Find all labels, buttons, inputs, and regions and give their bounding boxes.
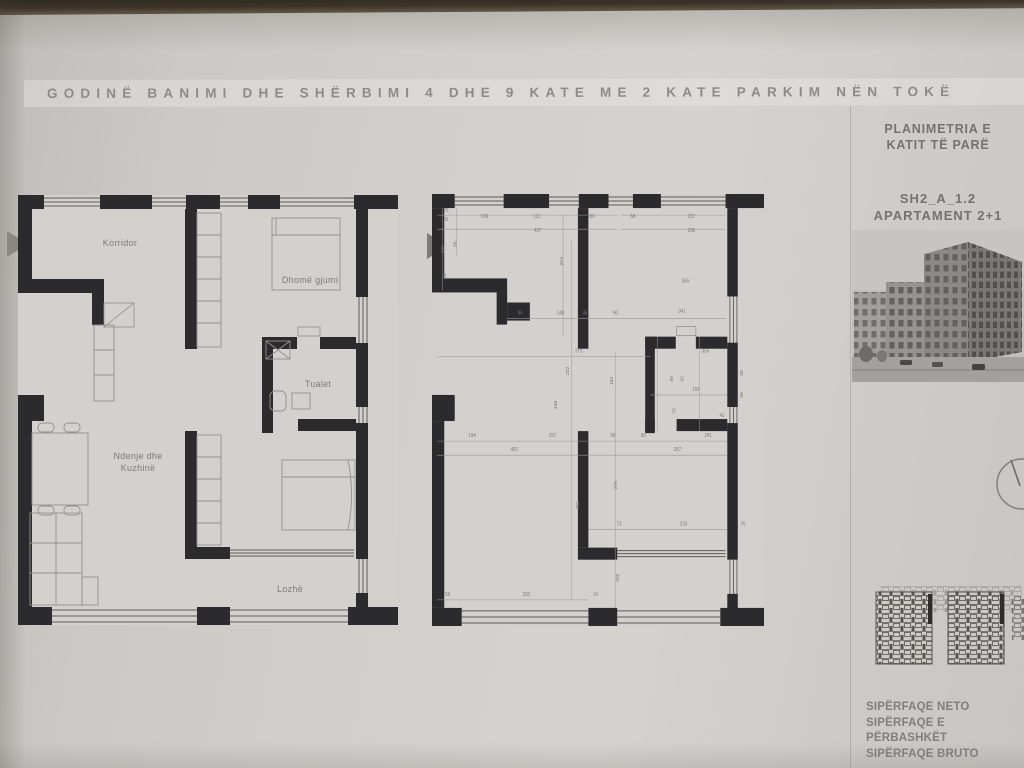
dimension-label: 355 <box>702 348 710 353</box>
dimension-label: 276 <box>614 481 619 490</box>
dimension-label: 257 <box>549 433 557 438</box>
dimension-label: 73 <box>617 521 622 526</box>
paper-top-edge <box>0 0 1024 15</box>
dimension-label: 41 <box>720 413 725 418</box>
dimension-label: 237 <box>688 214 696 219</box>
dimension-label: 192 <box>609 376 614 385</box>
keyplan-thumb-2 <box>948 592 1004 664</box>
keyplan-thumbnails-image <box>860 578 1024 670</box>
dimension-label: 96 <box>518 310 523 315</box>
plan-paper <box>432 194 764 626</box>
plan-paper <box>18 195 398 625</box>
paper-fold-line <box>850 106 851 768</box>
dimension-label: 194 <box>469 433 477 438</box>
dimension-label: 111 <box>534 214 541 219</box>
area-bruto: SIPËRFAQE BRUTO <box>866 747 1024 763</box>
dimension-label: 241 <box>704 433 712 438</box>
scanned-plan-sheet: GODINË BANIMI DHE SHËRBIMI 4 DHE 9 KATE … <box>0 0 1024 768</box>
dimension-label: 451 <box>575 501 580 510</box>
dimension-label: 202 <box>615 573 620 582</box>
dimension-label: 56 <box>453 241 458 247</box>
area-summary: SIPËRFAQE NETO SIPËRFAQE E PËRBASHKËT SI… <box>866 700 1024 762</box>
dimension-label: 14 <box>593 592 598 597</box>
dimension-label: 365 <box>682 278 690 283</box>
dimension-label: 36 <box>442 273 447 279</box>
dimension-label: 90 <box>669 376 674 382</box>
dimension-label: 56 <box>445 592 450 597</box>
dimension-label: 90 <box>641 433 646 438</box>
floorplan-dimensioned: 7543106111156684372372961005636253365961… <box>432 194 764 631</box>
area-perbashket: SIPËRFAQE E PËRBASHKËT <box>866 716 1024 747</box>
keyplan-thumb-1 <box>876 592 932 664</box>
dimension-label: 106 <box>481 214 489 219</box>
room-label-ndenje-1: Ndenje dhe <box>113 451 162 461</box>
dimension-label: 68 <box>631 214 636 219</box>
keyplan-thumb-partial <box>1012 596 1024 640</box>
apartment-type: APARTAMENT 2+1 <box>852 207 1024 224</box>
dimension-label: 296 <box>688 228 696 233</box>
dimension-label: 100 <box>441 245 446 254</box>
unit-code: SH2_A_1.2 <box>852 190 1024 207</box>
dimension-label: 96 <box>739 392 744 398</box>
dimension-label: 458 <box>553 400 558 409</box>
room-label-dhome-gjumi: Dhomë gjumi <box>282 275 338 285</box>
dimension-label: 43 <box>444 217 449 222</box>
dimension-label: 233 <box>680 521 688 526</box>
dimension-label: 156 <box>587 214 595 219</box>
dimension-label: 92 <box>680 376 685 382</box>
dimension-label: 90 <box>613 310 618 315</box>
room-label-ndenje-2: Kuzhinë <box>121 463 156 473</box>
dimension-label: 257 <box>674 447 682 452</box>
area-neto: SIPËRFAQE NETO <box>866 700 1024 716</box>
building-rendering <box>852 230 1024 387</box>
unit-block: SH2_A_1.2 APARTAMENT 2+1 <box>852 190 1024 224</box>
floorplan-furnished-drawing: Korridor Dhomë gjumi Tualet Ndenje dhe K… <box>18 193 398 627</box>
dimension-label: 253 <box>559 257 564 266</box>
room-label-lozhe: Lozhë <box>277 584 303 594</box>
dimension-label: 70 <box>672 408 677 414</box>
floorplan-furnished: Korridor Dhomë gjumi Tualet Ndenje dhe K… <box>18 193 398 632</box>
dimension-label: 379 <box>575 348 583 353</box>
dimension-label: 437 <box>534 228 542 233</box>
circle-symbol <box>986 450 1024 519</box>
circle-symbol-icon <box>986 450 1024 514</box>
dimension-label: 96 <box>610 433 615 438</box>
sheet-plan-title: PLANIMETRIA E KATIT TË PARË <box>852 121 1024 153</box>
keyplan-thumbnails <box>860 578 1024 675</box>
room-label-tualet: Tualet <box>305 379 332 389</box>
room-label-korridor: Korridor <box>103 238 137 248</box>
plan-title-line2: KATIT TË PARË <box>852 137 1024 153</box>
dimension-label: 75 <box>444 208 449 213</box>
dimension-label: 233 <box>523 592 531 597</box>
plan-title-line1: PLANIMETRIA E <box>852 121 1024 137</box>
dimension-label: 160 <box>692 387 700 392</box>
dimension-label: 222 <box>565 366 570 375</box>
dimension-label: 58 <box>739 370 744 376</box>
dimension-label: 76 <box>741 521 746 526</box>
building-rendering-image <box>852 230 1024 382</box>
dimension-label: 403 <box>510 447 518 452</box>
dimension-label: 148 <box>557 310 565 315</box>
dimension-label: 341 <box>678 308 686 313</box>
dimension-label: 45 <box>582 310 587 315</box>
floorplan-dimensioned-drawing: 7543106111156684372372961005636253365961… <box>432 194 764 626</box>
document-title: GODINË BANIMI DHE SHËRBIMI 4 DHE 9 KATE … <box>47 84 955 101</box>
